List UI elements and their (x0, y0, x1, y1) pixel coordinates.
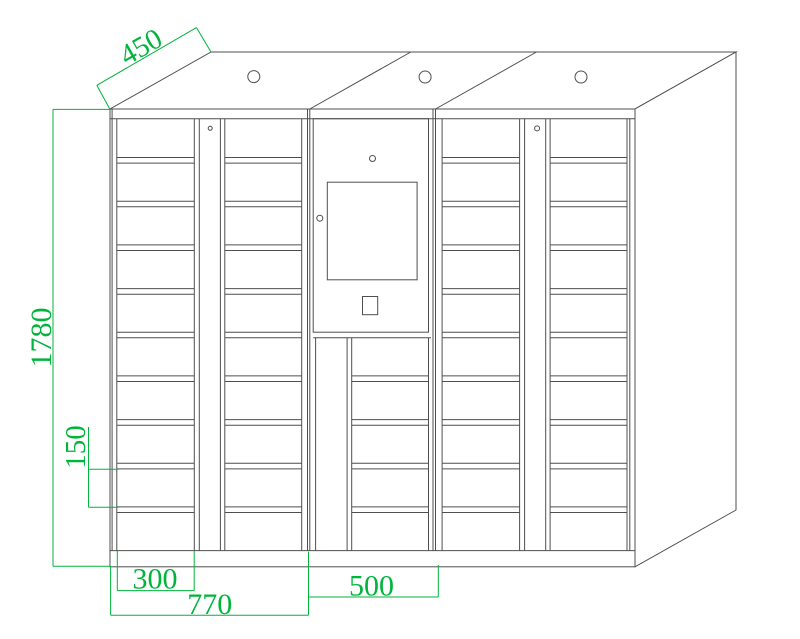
svg-text:150: 150 (60, 425, 92, 469)
svg-text:300: 300 (133, 563, 178, 596)
svg-text:770: 770 (187, 588, 232, 621)
svg-text:500: 500 (349, 570, 394, 603)
svg-text:1780: 1780 (25, 308, 58, 368)
